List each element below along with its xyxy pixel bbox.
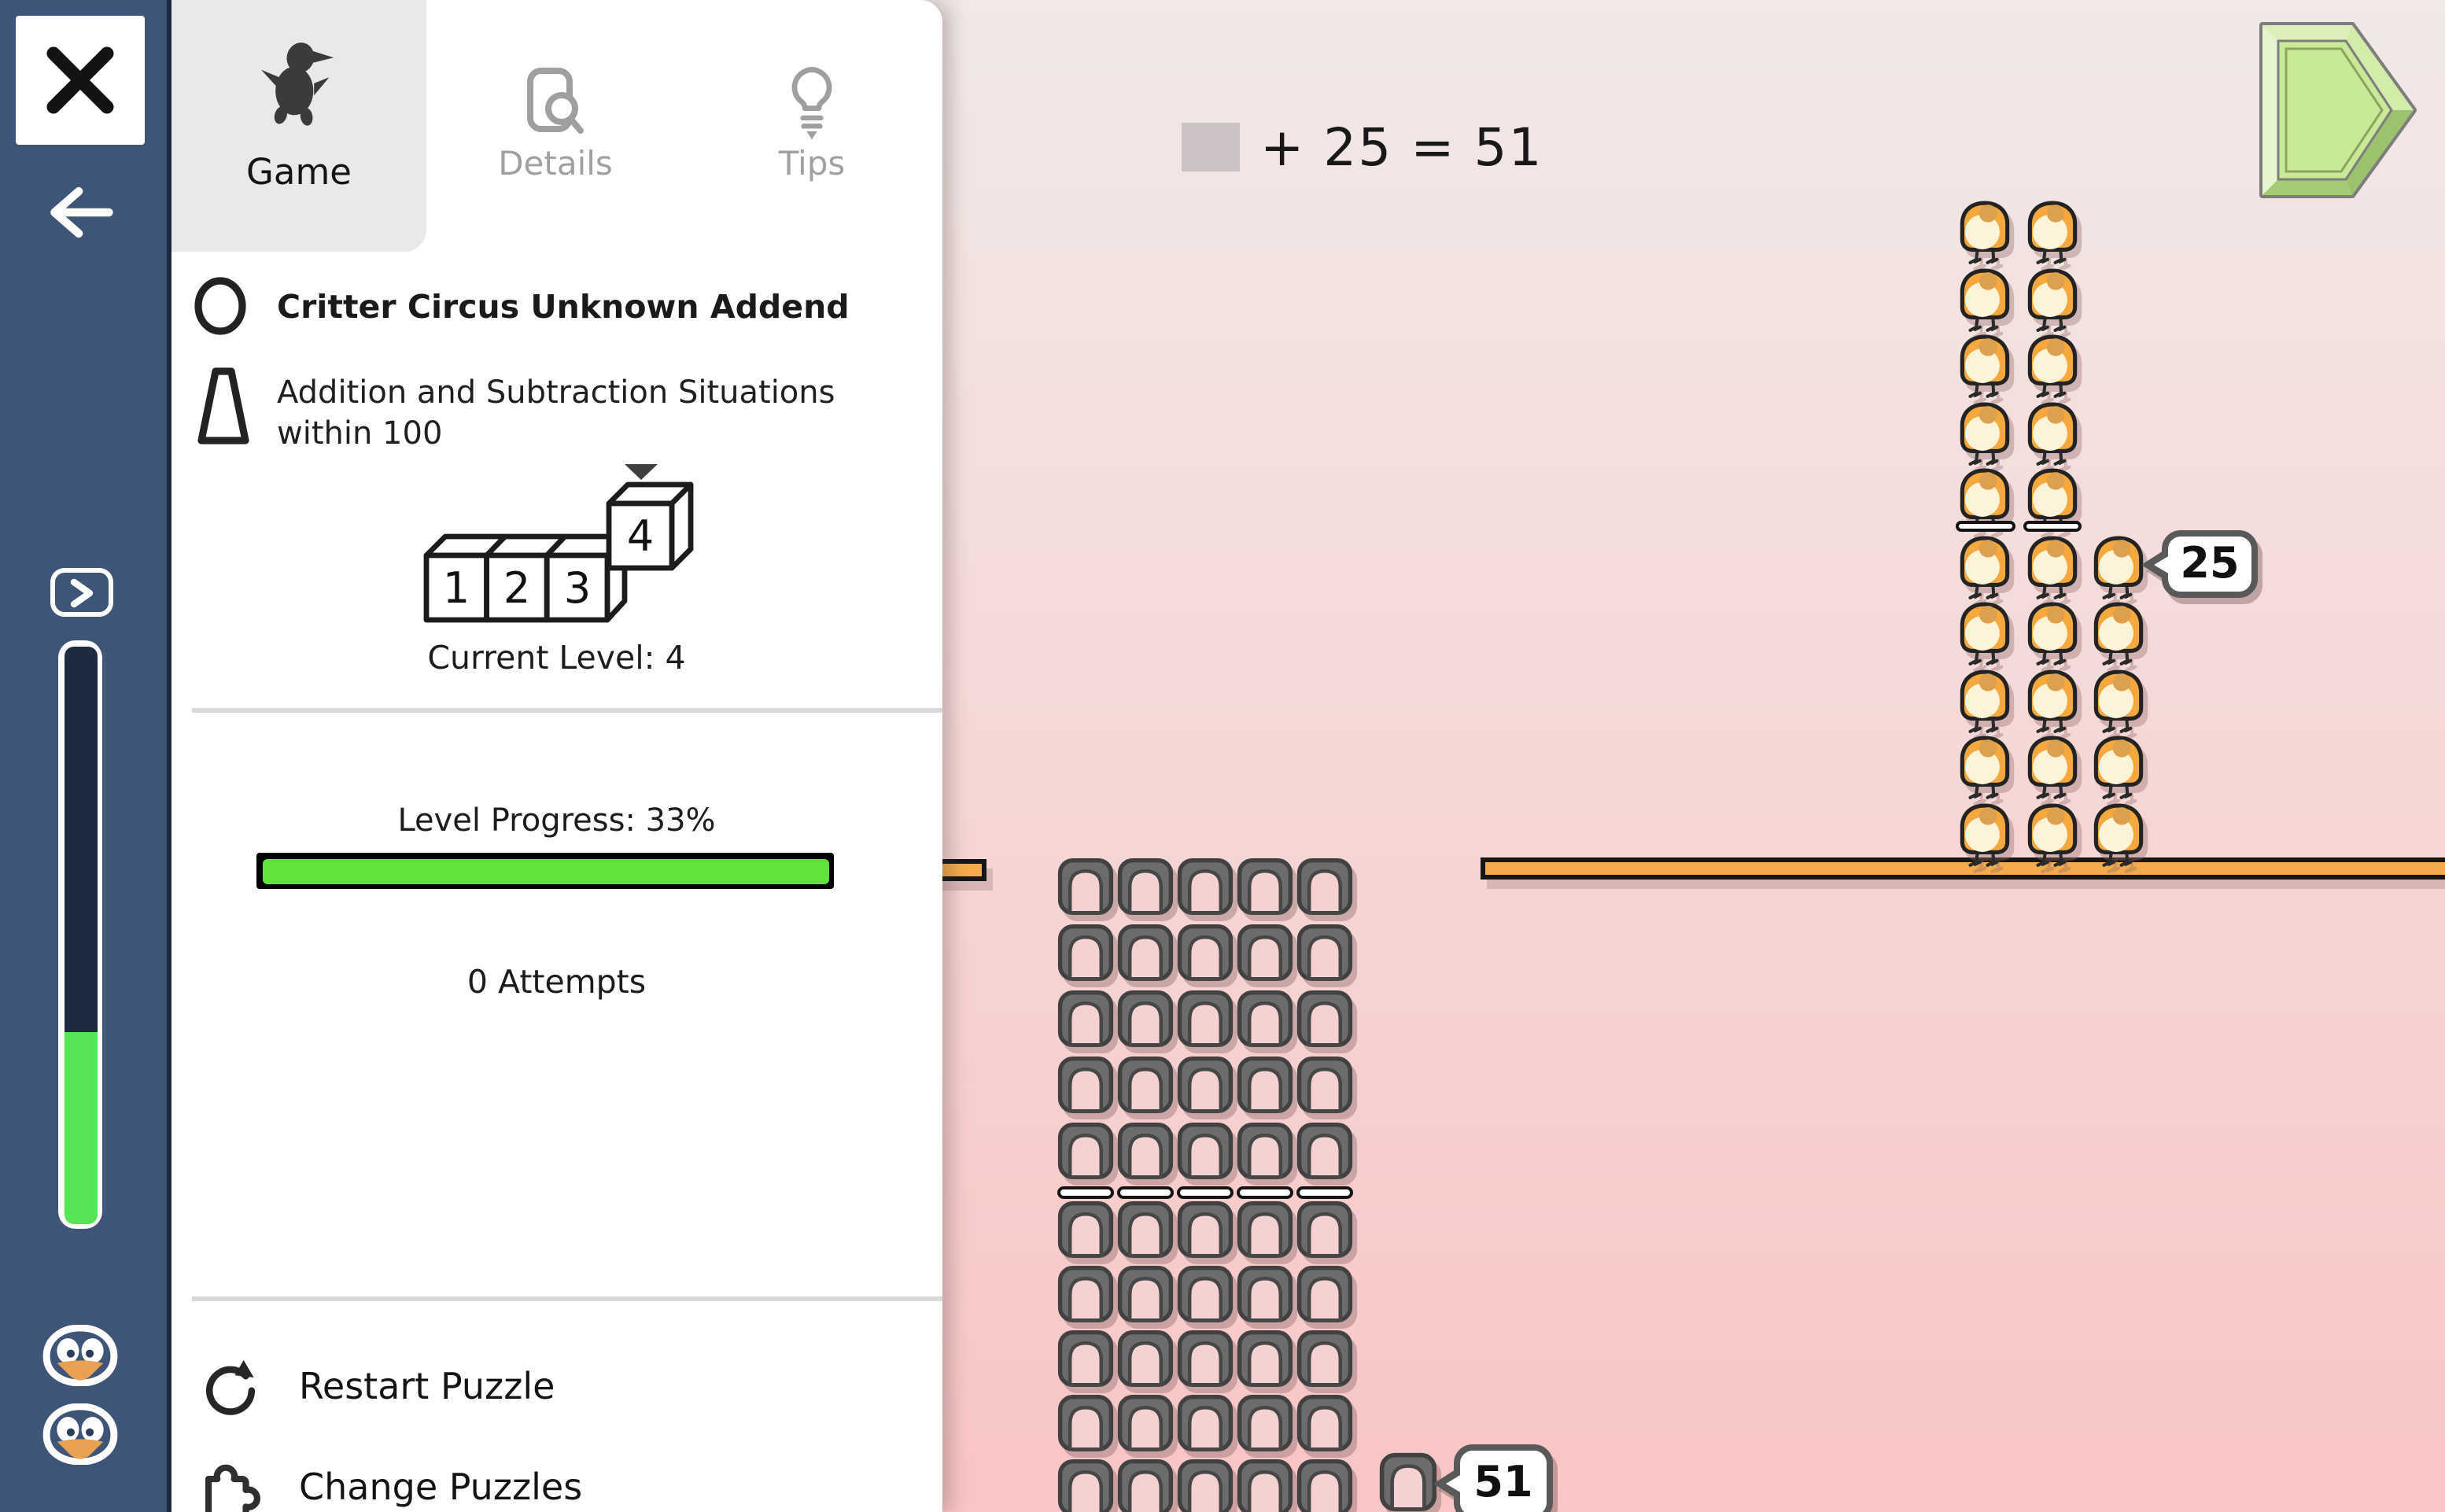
tab-details-label: Details xyxy=(459,145,651,183)
cage-block xyxy=(1237,1393,1293,1451)
chevron-right-icon xyxy=(69,577,94,608)
cage-block xyxy=(1057,990,1113,1048)
cage-block xyxy=(1116,1329,1173,1387)
cage-count-bubble: 51 xyxy=(1454,1444,1553,1512)
critter[interactable] xyxy=(2026,601,2078,669)
cage-block xyxy=(1297,1329,1354,1387)
cage-block-extra xyxy=(1377,1452,1437,1512)
svg-text:1: 1 xyxy=(443,563,470,613)
cage-block xyxy=(1237,1458,1293,1512)
cage-block xyxy=(1116,1200,1173,1258)
cage-block xyxy=(1237,1122,1293,1180)
critter[interactable] xyxy=(2093,534,2144,602)
critter[interactable] xyxy=(2026,668,2078,736)
group-of-five-marker xyxy=(1237,1186,1293,1198)
puzzle-title: Critter Circus Unknown Addend xyxy=(277,277,906,335)
group-of-five-marker xyxy=(1956,520,2015,532)
lightbulb-icon xyxy=(785,63,839,145)
critter[interactable] xyxy=(2026,267,2078,334)
tab-game-label: Game xyxy=(171,153,426,194)
level-map: 1 2 3 4 xyxy=(423,464,694,626)
divider xyxy=(192,708,942,713)
cage-block xyxy=(1297,990,1354,1048)
group-of-five-marker xyxy=(2023,520,2082,532)
cage-block xyxy=(1057,1122,1113,1180)
cage-block xyxy=(1177,1264,1234,1322)
tab-game[interactable]: Game xyxy=(171,0,426,252)
cage-block xyxy=(1237,1329,1293,1387)
cage-block xyxy=(1177,1458,1234,1512)
cage-block xyxy=(1057,1393,1113,1451)
sidebar xyxy=(0,0,171,1512)
restart-puzzle-button[interactable]: Restart Puzzle xyxy=(171,1347,942,1429)
cage-block xyxy=(1116,857,1173,916)
level-progress-label: Level Progress: 33% xyxy=(171,801,942,839)
critter[interactable] xyxy=(2093,735,2144,802)
cage-block xyxy=(1237,1200,1293,1258)
critter[interactable] xyxy=(1959,601,2011,669)
equation-text: + 25 = 51 xyxy=(1260,116,1543,178)
cage-block xyxy=(1116,1393,1173,1451)
cage-block xyxy=(1116,990,1173,1048)
cage-block xyxy=(1116,1122,1173,1180)
tab-tips[interactable]: Tips xyxy=(716,0,908,205)
cage-block xyxy=(1297,1200,1354,1258)
expand-panel-button[interactable] xyxy=(50,568,113,617)
standard-line1: Addition and Subtraction Situations xyxy=(277,371,835,412)
critter[interactable] xyxy=(2026,735,2078,802)
cage-block xyxy=(1237,1264,1293,1322)
session-progress-fill xyxy=(64,1033,97,1223)
penguin-icon xyxy=(36,1403,124,1465)
current-level: Current Level: 4 xyxy=(171,639,942,677)
cage-block xyxy=(1177,1329,1234,1387)
restart-icon xyxy=(201,1356,260,1419)
cage-block xyxy=(1297,1458,1354,1512)
group-of-five-marker xyxy=(1057,1186,1113,1198)
current-level-arrow-icon xyxy=(625,464,658,480)
cage-block xyxy=(1116,1056,1173,1114)
standard-line2: within 100 xyxy=(277,412,835,453)
critter-count: 25 xyxy=(2180,540,2239,588)
cage-block xyxy=(1177,924,1234,982)
cage-block xyxy=(1237,857,1293,916)
cage-block xyxy=(1057,1200,1113,1258)
svg-text:3: 3 xyxy=(564,563,591,613)
circle-icon xyxy=(194,277,247,335)
play-button[interactable] xyxy=(2259,22,2418,198)
trapezoid-icon xyxy=(194,367,253,445)
critter[interactable] xyxy=(2093,601,2144,669)
cage-block xyxy=(1297,1056,1354,1114)
cage-block xyxy=(1297,924,1354,982)
critter-icon xyxy=(260,38,338,126)
critter[interactable] xyxy=(2026,400,2078,468)
cage-block xyxy=(1177,1122,1234,1180)
cage-block xyxy=(1297,1122,1354,1180)
app-window: + 25 = 51 xyxy=(0,0,2445,1512)
attempts-label: 0 Attempts xyxy=(171,963,942,1001)
cage-block xyxy=(1237,924,1293,982)
standard-text: Addition and Subtraction Situations with… xyxy=(277,371,835,453)
critter[interactable] xyxy=(2093,802,2144,869)
level-progress-fill xyxy=(262,858,828,883)
cage-count: 51 xyxy=(1473,1459,1532,1507)
group-of-five-marker xyxy=(1177,1186,1234,1198)
cage-block xyxy=(1237,990,1293,1048)
cage-block xyxy=(1177,990,1234,1048)
level-progress-bar xyxy=(256,853,834,889)
close-button[interactable] xyxy=(16,16,145,145)
critter-count-bubble: 25 xyxy=(2162,530,2258,598)
cage-block xyxy=(1177,1200,1234,1258)
cage-block xyxy=(1177,1056,1234,1114)
puzzle-piece-icon xyxy=(198,1459,263,1512)
cage-block xyxy=(1297,1264,1354,1322)
critter[interactable] xyxy=(2026,334,2078,401)
critter[interactable] xyxy=(1959,200,2011,267)
critter[interactable] xyxy=(2093,668,2144,736)
critter[interactable] xyxy=(1959,802,2011,869)
cage-block xyxy=(1177,1393,1234,1451)
critter[interactable] xyxy=(1959,735,2011,802)
close-icon xyxy=(16,16,145,145)
cage-block xyxy=(1057,1264,1113,1322)
restart-puzzle-label: Restart Puzzle xyxy=(299,1367,555,1408)
tab-tips-label: Tips xyxy=(716,145,908,183)
cage-block xyxy=(1237,1056,1293,1114)
group-of-five-marker xyxy=(1116,1186,1173,1198)
change-puzzles-label: Change Puzzles xyxy=(299,1468,582,1509)
session-progress-bar xyxy=(58,640,102,1229)
critter[interactable] xyxy=(2026,200,2078,267)
cage-block xyxy=(1057,857,1113,916)
cage-block xyxy=(1297,857,1354,916)
unknown-addend-placeholder[interactable] xyxy=(1182,123,1240,171)
details-icon xyxy=(526,66,585,142)
critter[interactable] xyxy=(2026,534,2078,602)
cage-block xyxy=(1116,924,1173,982)
info-panel: Game Details Tips Critter Circus Unknown… xyxy=(171,0,942,1512)
tab-details[interactable]: Details xyxy=(459,0,651,205)
session-progress-track xyxy=(64,646,97,1033)
critter[interactable] xyxy=(1959,267,2011,334)
equation: + 25 = 51 xyxy=(1182,116,1543,178)
critter[interactable] xyxy=(1959,334,2011,401)
cage-block xyxy=(1116,1458,1173,1512)
critter[interactable] xyxy=(1959,400,2011,468)
divider xyxy=(192,1296,942,1301)
cage-block xyxy=(1116,1264,1173,1322)
critter[interactable] xyxy=(1959,668,2011,736)
svg-text:2: 2 xyxy=(503,563,530,613)
cage-block xyxy=(1057,1329,1113,1387)
critter[interactable] xyxy=(2026,802,2078,869)
cage-block xyxy=(1297,1393,1354,1451)
cage-block xyxy=(1057,1458,1113,1512)
critter[interactable] xyxy=(1959,534,2011,602)
cage-block xyxy=(1057,1056,1113,1114)
penguin-icon xyxy=(36,1325,124,1386)
svg-text:4: 4 xyxy=(627,511,654,561)
group-of-five-marker xyxy=(1297,1186,1354,1198)
cage-block xyxy=(1177,857,1234,916)
back-button[interactable] xyxy=(44,179,116,245)
cage-block xyxy=(1057,924,1113,982)
change-puzzles-button[interactable]: Change Puzzles xyxy=(171,1447,942,1512)
